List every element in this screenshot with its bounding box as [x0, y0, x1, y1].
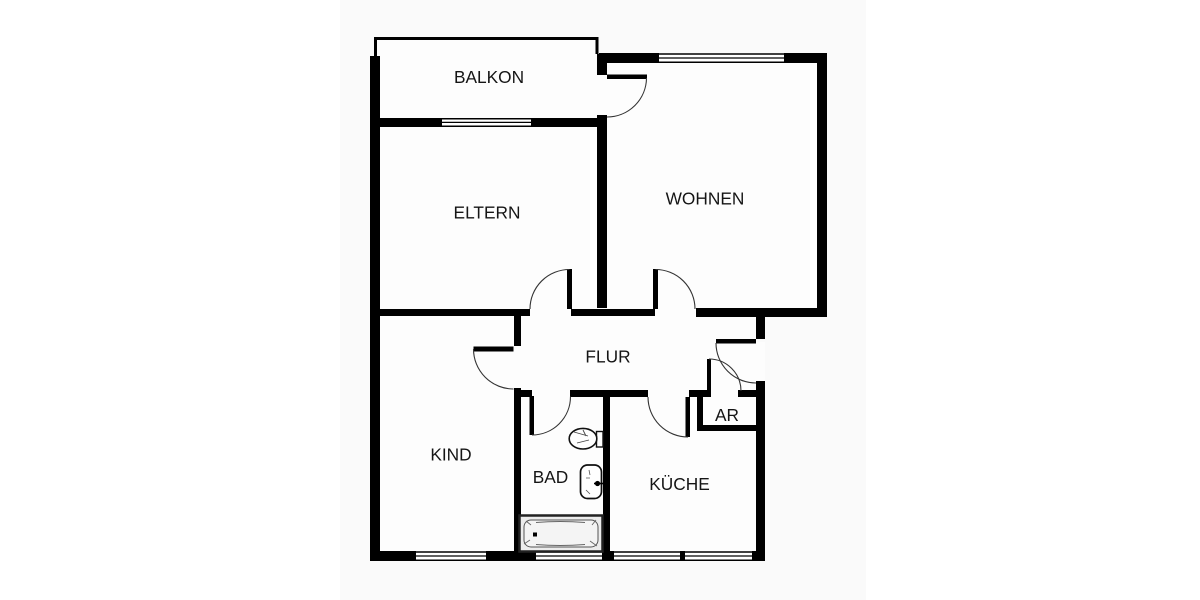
svg-text:KIND: KIND: [430, 445, 471, 465]
svg-text:WOHNEN: WOHNEN: [666, 188, 745, 208]
svg-text:KÜCHE: KÜCHE: [649, 474, 710, 494]
svg-text:BAD: BAD: [533, 467, 569, 487]
svg-text:AR: AR: [715, 405, 739, 425]
svg-text:FLUR: FLUR: [585, 347, 630, 367]
svg-text:ELTERN: ELTERN: [454, 203, 521, 223]
svg-text:BALKON: BALKON: [454, 67, 524, 87]
